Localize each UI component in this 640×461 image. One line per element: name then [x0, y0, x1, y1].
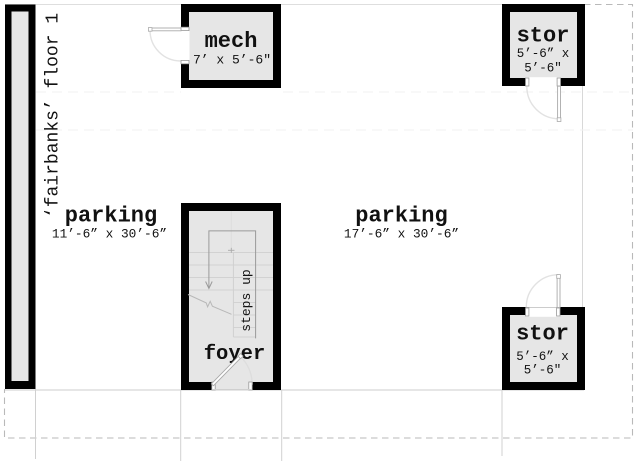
svg-text:‘fairbanks’ floor 1: ‘fairbanks’ floor 1: [44, 13, 64, 218]
svg-text:7’ x 5’-6": 7’ x 5’-6": [193, 53, 271, 68]
svg-text:11’-6” x 30’-6”: 11’-6” x 30’-6”: [52, 227, 167, 242]
svg-text:stor: stor: [516, 322, 569, 347]
svg-text:5’-6” x: 5’-6” x: [516, 350, 569, 364]
svg-text:mech: mech: [205, 29, 258, 54]
svg-text:17’-6” x 30’-6”: 17’-6” x 30’-6”: [344, 227, 459, 242]
svg-text:stor: stor: [517, 24, 570, 49]
svg-text:steps up: steps up: [239, 269, 254, 331]
svg-text:parking: parking: [65, 204, 157, 229]
svg-text:parking: parking: [355, 204, 447, 229]
svg-text:5’-6": 5’-6": [524, 364, 562, 378]
svg-text:5’-6": 5’-6": [524, 61, 562, 75]
svg-text:5’-6” x: 5’-6” x: [517, 47, 570, 61]
